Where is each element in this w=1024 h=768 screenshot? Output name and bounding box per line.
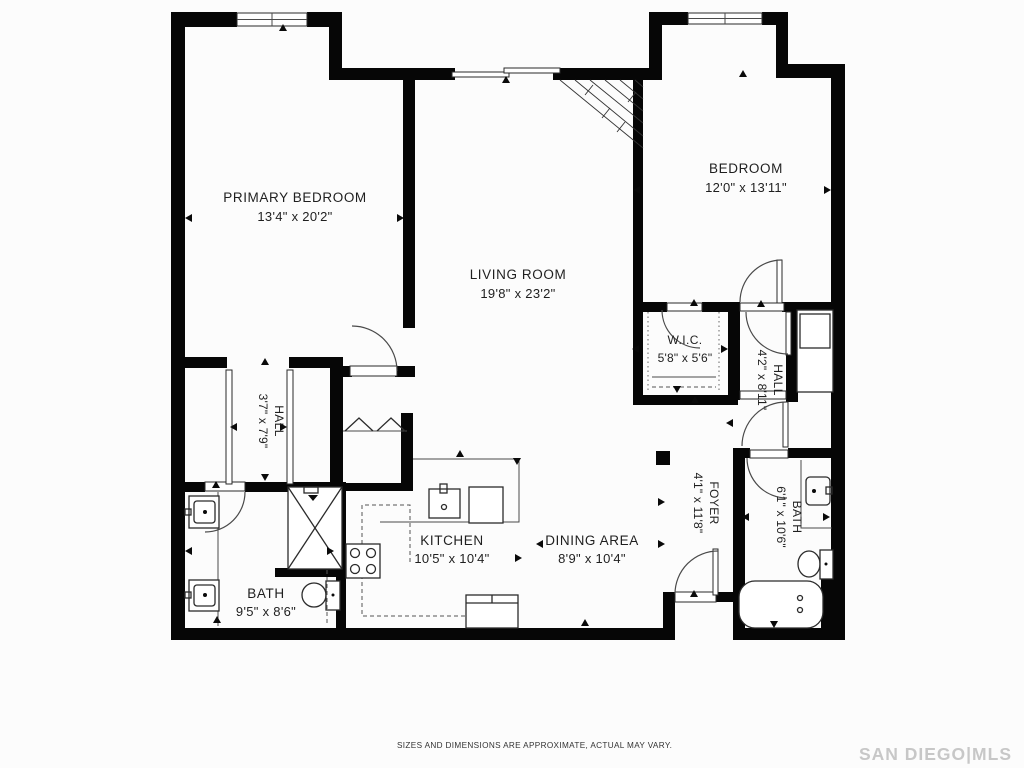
room-label-hall-left: HALL xyxy=(272,405,286,437)
floor-plan-page: PRIMARY BEDROOM 13'4" x 20'2" BEDROOM 12… xyxy=(0,0,1024,768)
room-dims-bedroom: 12'0" x 13'11" xyxy=(705,180,787,195)
fireplace-hatch xyxy=(560,80,643,148)
room-dims-hall-left: 3'7" x 7'9" xyxy=(256,394,270,449)
bathtub-icon xyxy=(739,581,823,628)
sliding-closet-door xyxy=(287,370,293,484)
room-dims-bath-right: 6'1" x 10'6" xyxy=(774,486,788,548)
column xyxy=(656,451,670,465)
room-label-dining-area: DINING AREA xyxy=(545,533,639,548)
sliding-door-panel xyxy=(504,68,560,73)
floor-plan: PRIMARY BEDROOM 13'4" x 20'2" BEDROOM 12… xyxy=(0,0,1024,768)
room-label-foyer: FOYER xyxy=(707,481,721,524)
room-dims-dining-area: 8'9" x 10'4" xyxy=(558,551,626,566)
mls-watermark: SAN DIEGO|MLS xyxy=(859,744,1012,764)
room-dims-foyer: 4'1" x 11'8" xyxy=(691,473,705,534)
door-arc-hall-upper xyxy=(746,312,788,354)
wall-chase xyxy=(821,578,843,634)
room-dims-bath-left: 9'5" x 8'6" xyxy=(236,604,296,619)
room-dims-primary-bedroom: 13'4" x 20'2" xyxy=(257,209,332,224)
bifold-door xyxy=(377,418,405,431)
toilet-icon xyxy=(302,583,326,607)
door-arc-bedroom xyxy=(740,260,782,302)
room-label-kitchen: KITCHEN xyxy=(420,533,483,548)
room-label-living-room: LIVING ROOM xyxy=(470,267,567,282)
bifold-door xyxy=(345,418,373,431)
refrigerator-icon xyxy=(469,487,503,523)
stove-icon xyxy=(346,544,380,578)
room-dims-living-room: 19'8" x 23'2" xyxy=(480,286,555,301)
room-dims-kitchen: 10'5" x 10'4" xyxy=(414,551,489,566)
walls xyxy=(171,12,845,640)
room-label-bedroom: BEDROOM xyxy=(709,161,783,176)
room-label-primary-bedroom: PRIMARY BEDROOM xyxy=(223,190,367,205)
room-label-bath-left: BATH xyxy=(247,586,284,601)
door-arc-primary-bedroom xyxy=(352,326,397,371)
laundry-closet xyxy=(797,310,833,392)
room-label-wic: W.I.C. xyxy=(667,333,702,347)
disclaimer-text: SIZES AND DIMENSIONS ARE APPROXIMATE, AC… xyxy=(397,741,672,750)
toilet-icon xyxy=(798,551,820,577)
room-dims-wic: 5'8" x 5'6" xyxy=(658,351,713,365)
room-label-hall-right: HALL xyxy=(771,364,785,396)
sliding-door-panel xyxy=(452,72,509,77)
door-arc-entry xyxy=(675,551,718,594)
room-dims-hall-right: 4'2" x 8'11" xyxy=(755,350,769,411)
room-label-bath-right: BATH xyxy=(790,501,804,534)
